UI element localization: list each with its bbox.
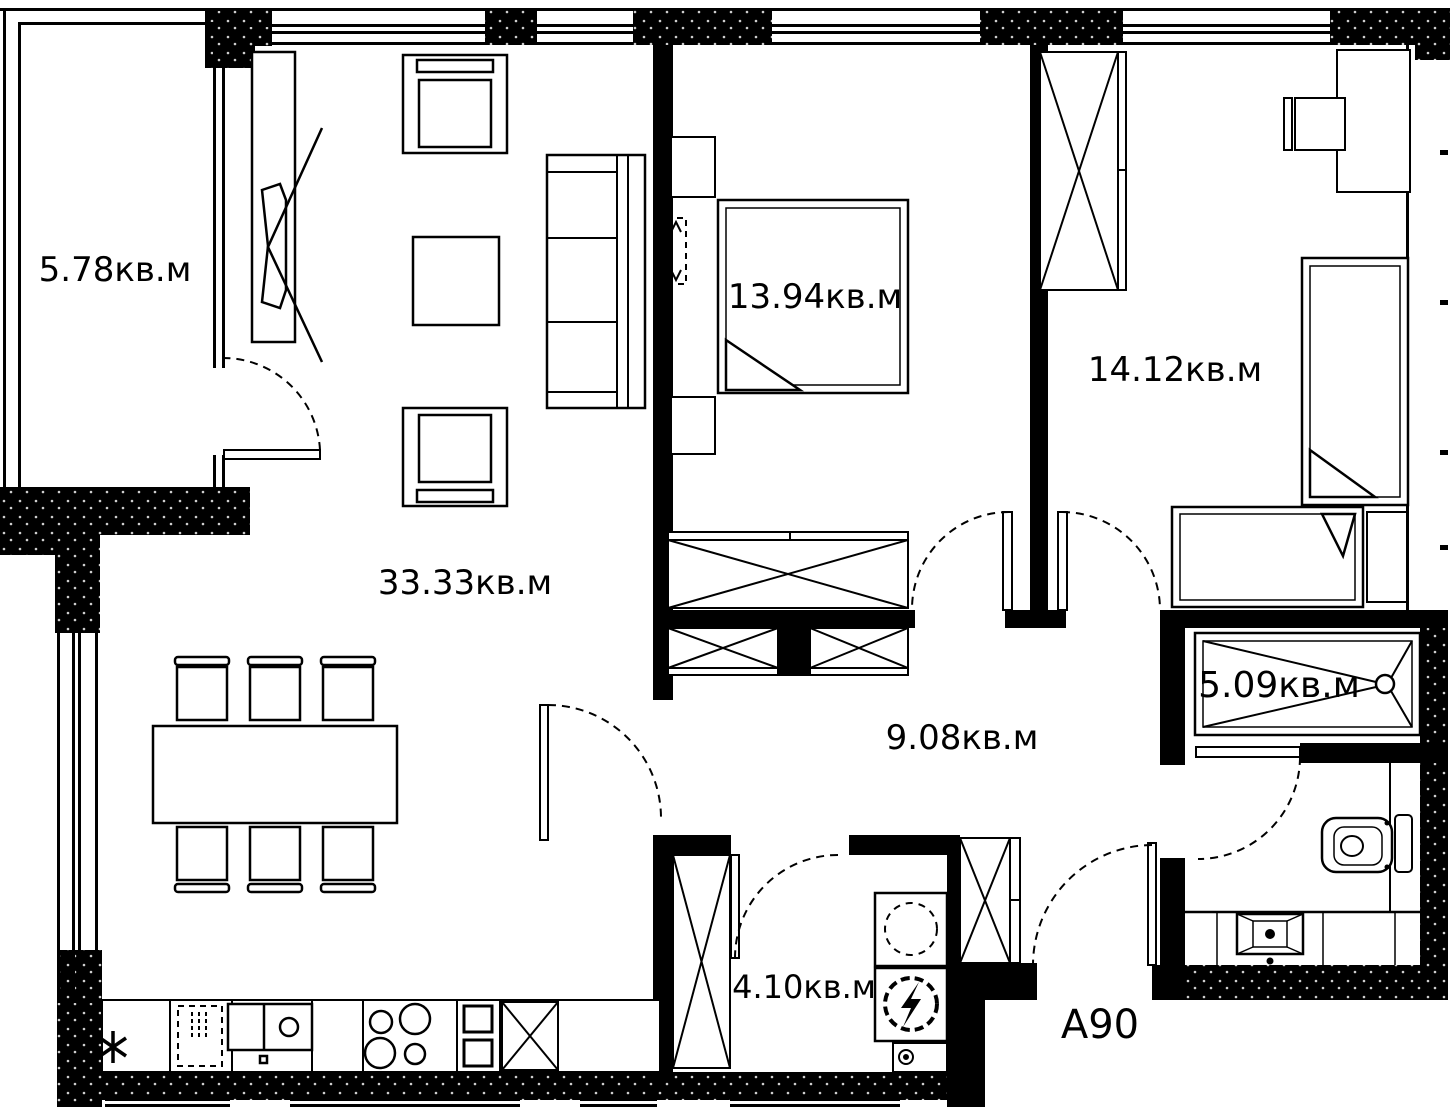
bed-single-horizontal [1172, 507, 1363, 607]
tall-cabinet [502, 1002, 558, 1070]
burner-icon [400, 1004, 430, 1034]
room-label-hallway: 9.08кв.м [886, 718, 1039, 758]
wardrobe-bedroom-1 [668, 532, 908, 608]
room-label-bedroom-1: 13.94кв.м [728, 277, 902, 317]
dining-chair [250, 827, 300, 880]
armchair-top [403, 55, 507, 153]
laundry-sink [893, 1043, 947, 1072]
burner-icon [365, 1038, 395, 1068]
desk [1337, 50, 1410, 192]
nightstand-bedroom-2 [1367, 512, 1407, 602]
bed-single-vertical [1302, 258, 1408, 505]
dining-chair [177, 667, 227, 720]
room-label-living: 33.33кв.м [378, 563, 552, 603]
unit-label: A90 [1061, 1002, 1139, 1048]
burner-icon [405, 1044, 425, 1064]
nightstand [671, 397, 715, 454]
nightstand [671, 137, 715, 197]
cistern [1395, 815, 1412, 872]
dining-chairs-top [175, 657, 375, 720]
hall-wardrobes [668, 628, 908, 675]
coffee-table [413, 237, 499, 325]
toilet [1322, 815, 1412, 872]
washing-machine [875, 968, 947, 1041]
dining-chair [177, 827, 227, 880]
sofa [547, 155, 645, 408]
laundry-wardrobe [673, 855, 730, 1068]
floor-plan-drawing: 5.78кв.м 33.33кв.м 13.94кв.м 14.12кв.м 9… [0, 0, 1450, 1107]
wardrobe-entry [960, 838, 1020, 963]
dining-table [153, 726, 397, 823]
room-label-balcony: 5.78кв.м [39, 250, 192, 290]
burner-icon [370, 1011, 392, 1033]
armchair-bottom [403, 408, 507, 506]
drain-icon [1376, 675, 1394, 693]
room-label-laundry: 4.10кв.м [732, 968, 876, 1006]
floor-plan: 5.78кв.м 33.33кв.м 13.94кв.м 14.12кв.м 9… [0, 0, 1450, 1107]
dining-chair [250, 667, 300, 720]
room-label-bathroom: 5.09кв.м [1198, 665, 1360, 706]
dining-chair [323, 827, 373, 880]
room-label-bedroom-2: 14.12кв.м [1088, 350, 1262, 390]
wardrobe-bedroom-2 [1040, 52, 1126, 290]
dining-chair [323, 667, 373, 720]
wall-stub [778, 628, 810, 675]
faucet-icon [280, 1018, 298, 1036]
dryer [875, 893, 947, 966]
